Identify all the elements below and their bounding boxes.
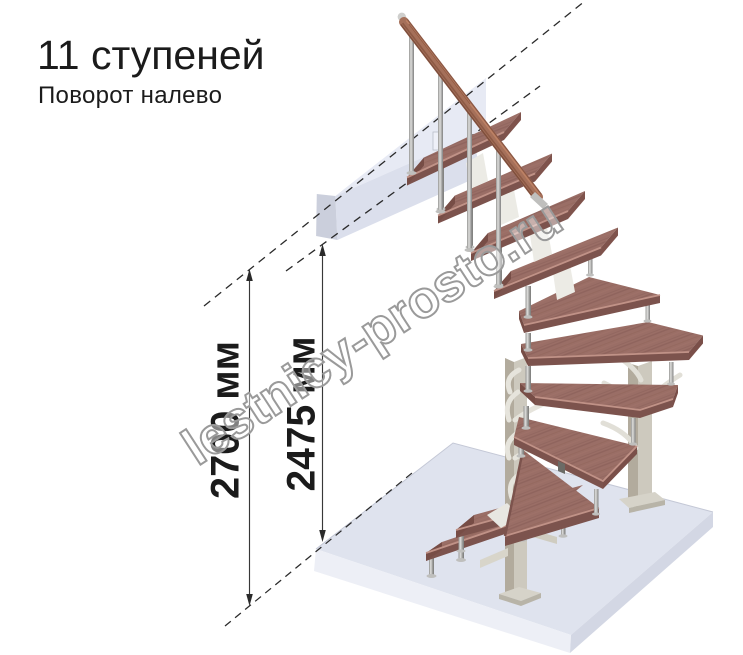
svg-text:Поворот налево: Поворот налево [38,82,222,109]
svg-text:11 ступеней: 11 ступеней [37,32,265,78]
